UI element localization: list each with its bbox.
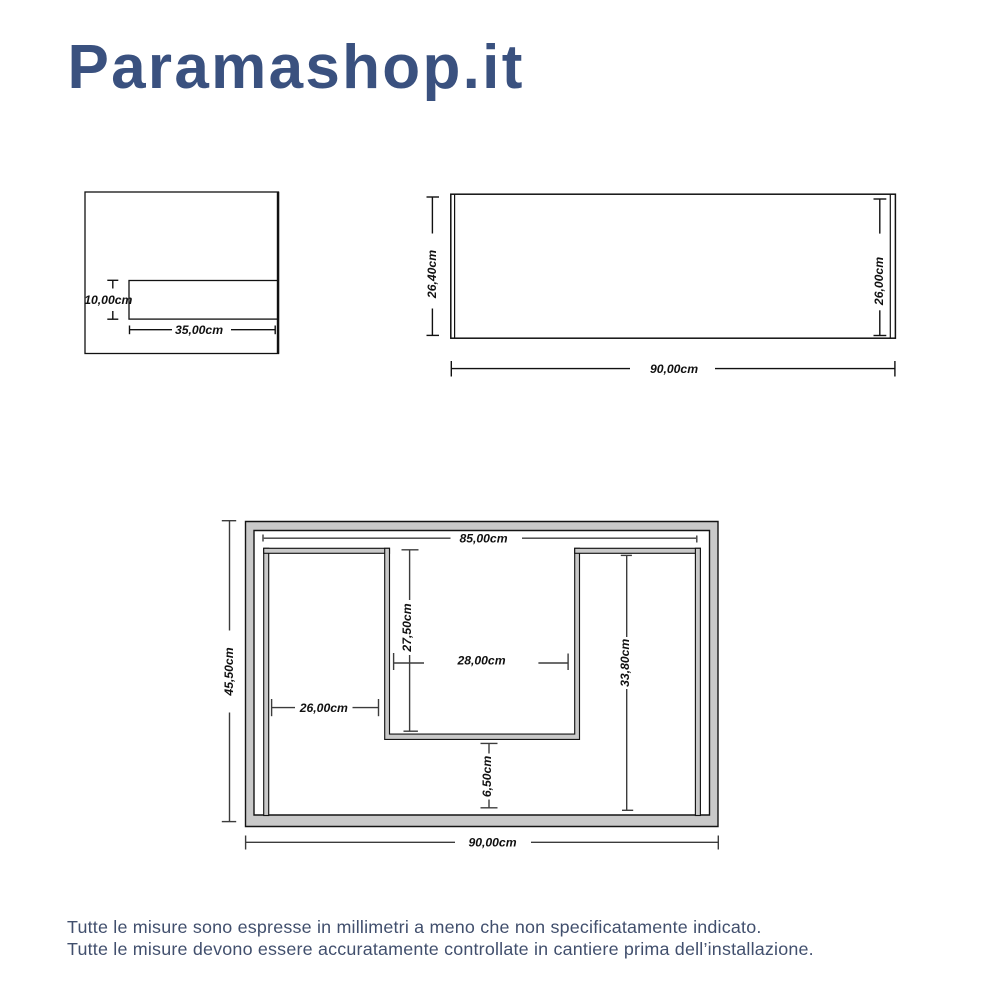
- svg-text:85,00cm: 85,00cm: [459, 532, 507, 546]
- svg-text:27,50cm: 27,50cm: [400, 603, 414, 652]
- svg-text:35,00cm: 35,00cm: [175, 323, 223, 337]
- svg-text:33,80cm: 33,80cm: [618, 639, 632, 687]
- svg-text:26,00cm: 26,00cm: [299, 701, 348, 715]
- svg-text:10,00cm: 10,00cm: [84, 293, 132, 307]
- svg-text:26,00cm: 26,00cm: [872, 257, 886, 306]
- svg-text:28,00cm: 28,00cm: [456, 654, 505, 668]
- svg-text:6,50cm: 6,50cm: [480, 756, 494, 797]
- svg-text:45,50cm: 45,50cm: [222, 647, 236, 696]
- svg-text:90,00cm: 90,00cm: [468, 835, 516, 849]
- svg-text:90,00cm: 90,00cm: [650, 362, 698, 376]
- svg-text:26,40cm: 26,40cm: [425, 250, 439, 299]
